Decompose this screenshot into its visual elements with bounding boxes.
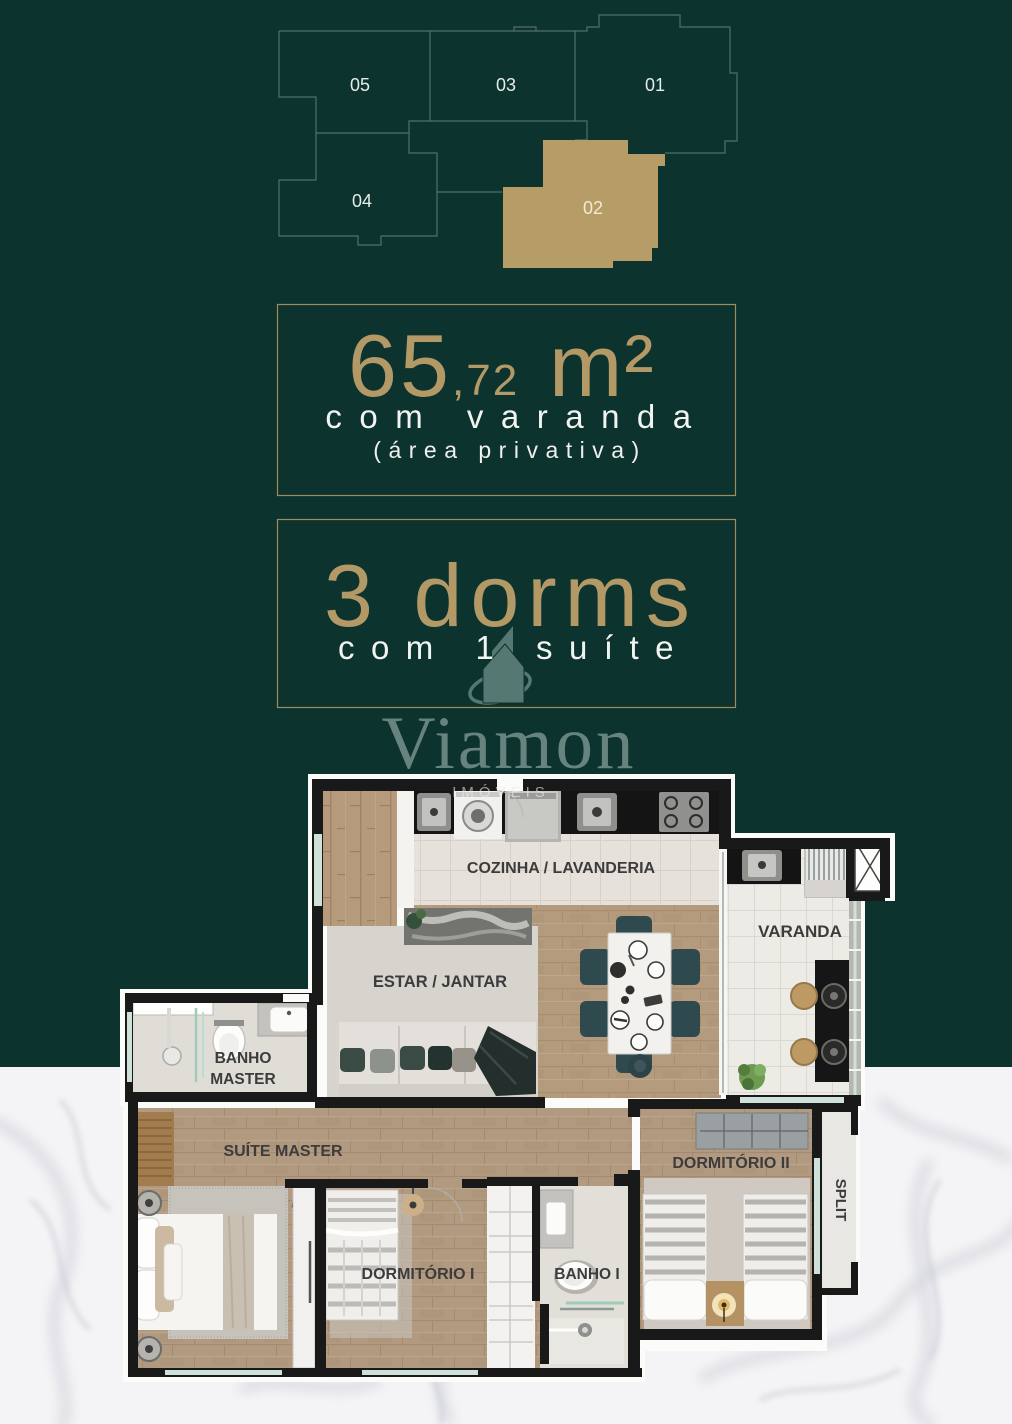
svg-text:01: 01: [645, 75, 665, 95]
svg-text:04: 04: [352, 191, 372, 211]
svg-text:com 1 suíte: com 1 suíte: [338, 629, 690, 666]
svg-text:BANHO: BANHO: [215, 1050, 272, 1067]
svg-text:com varanda: com varanda: [325, 398, 708, 435]
svg-text:IMÓVEIS: IMÓVEIS: [452, 784, 550, 801]
svg-text:ESTAR / JANTAR: ESTAR / JANTAR: [373, 973, 507, 991]
svg-text:(área privativa): (área privativa): [373, 437, 646, 463]
svg-text:COZINHA / LAVANDERIA: COZINHA / LAVANDERIA: [467, 860, 656, 877]
svg-text:BANHO I: BANHO I: [554, 1266, 619, 1283]
svg-text:02: 02: [583, 198, 603, 218]
svg-text:DORMITÓRIO II: DORMITÓRIO II: [672, 1153, 789, 1172]
svg-text:Viamon: Viamon: [381, 702, 636, 785]
svg-text:SPLIT: SPLIT: [832, 1179, 849, 1222]
svg-text:03: 03: [496, 75, 516, 95]
svg-text:DORMITÓRIO I: DORMITÓRIO I: [362, 1264, 475, 1283]
svg-text:05: 05: [350, 75, 370, 95]
svg-text:VARANDA: VARANDA: [758, 922, 842, 941]
svg-text:SUÍTE MASTER: SUÍTE MASTER: [223, 1141, 343, 1160]
svg-text:MASTER: MASTER: [210, 1071, 275, 1088]
